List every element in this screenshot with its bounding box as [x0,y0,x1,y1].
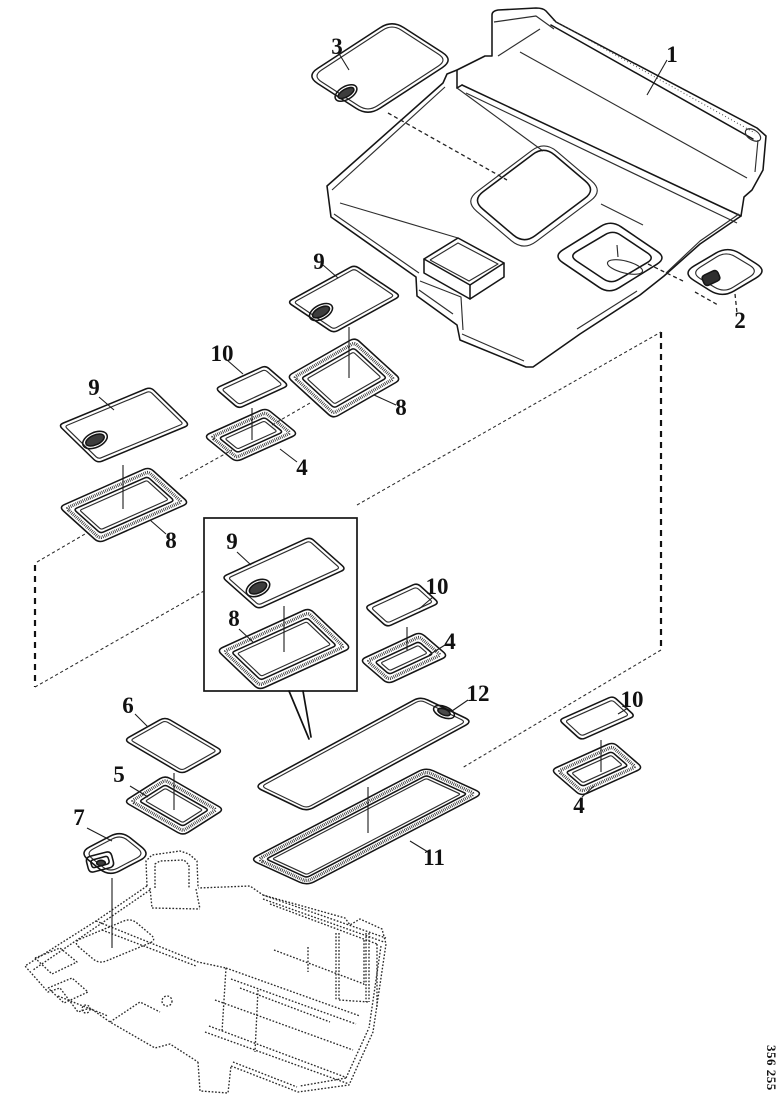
svg-text:356 255: 356 255 [764,1045,778,1091]
svg-text:4: 4 [573,793,585,818]
svg-text:8: 8 [395,395,407,420]
svg-text:11: 11 [423,845,445,870]
svg-text:6: 6 [122,693,134,718]
svg-text:9: 9 [313,249,325,274]
svg-text:7: 7 [73,805,85,830]
svg-text:8: 8 [228,606,240,631]
svg-text:1: 1 [666,42,678,67]
svg-text:10: 10 [426,574,449,599]
svg-text:12: 12 [467,681,490,706]
svg-text:9: 9 [88,375,100,400]
svg-text:9: 9 [226,529,238,554]
svg-text:10: 10 [621,687,644,712]
svg-text:4: 4 [444,629,456,654]
svg-text:3: 3 [331,34,343,59]
svg-text:8: 8 [165,528,177,553]
svg-text:2: 2 [734,308,746,333]
svg-text:4: 4 [296,455,308,480]
svg-text:10: 10 [211,341,234,366]
svg-text:5: 5 [113,762,125,787]
